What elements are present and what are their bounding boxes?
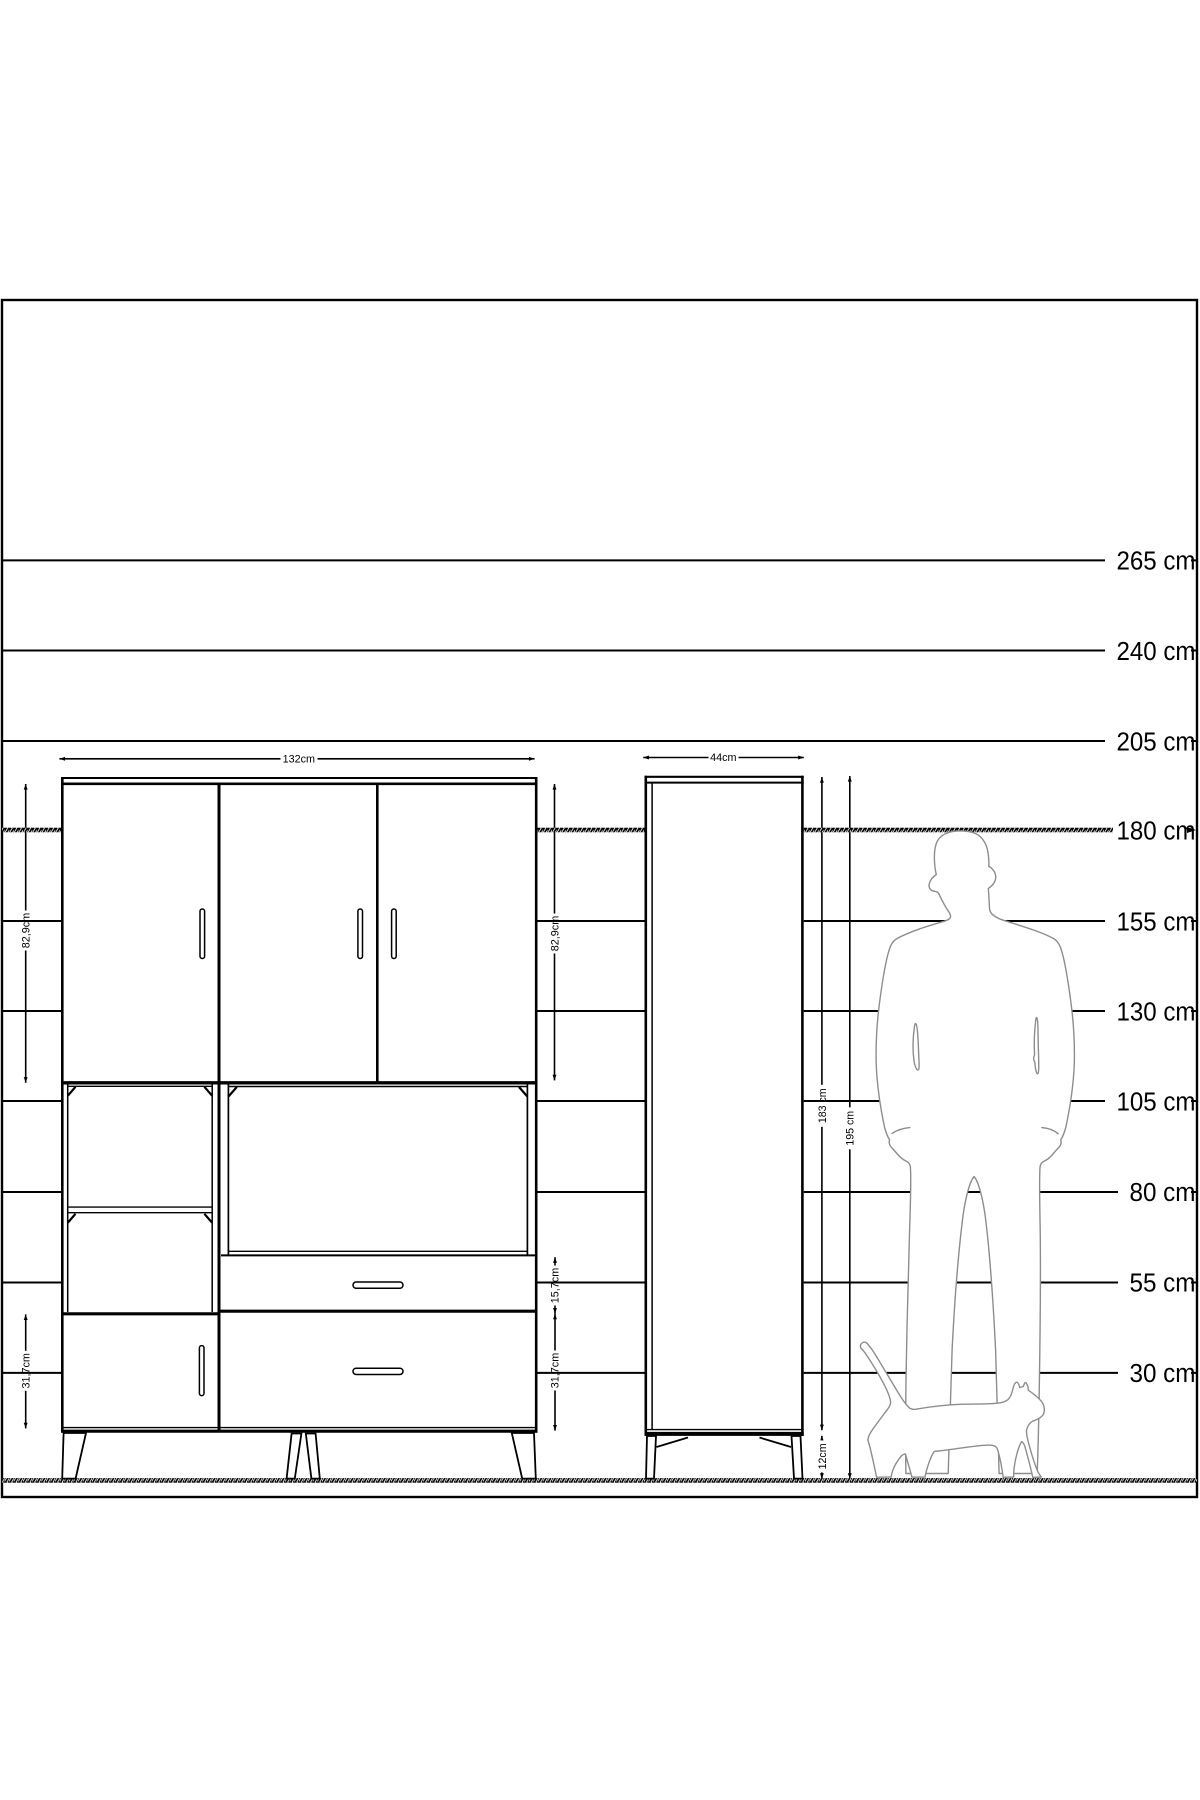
svg-text:195 cm: 195 cm — [845, 1111, 857, 1146]
svg-text:240 cm: 240 cm — [1117, 638, 1196, 666]
svg-text:183 cm: 183 cm — [817, 1088, 829, 1123]
svg-text:105 cm: 105 cm — [1117, 1088, 1196, 1116]
svg-text:130 cm: 130 cm — [1117, 998, 1196, 1026]
svg-text:132cm: 132cm — [283, 754, 315, 766]
svg-text:31,7cm: 31,7cm — [21, 1353, 33, 1388]
svg-text:55 cm: 55 cm — [1130, 1270, 1196, 1298]
svg-text:44cm: 44cm — [710, 752, 736, 764]
svg-text:265 cm: 265 cm — [1117, 548, 1196, 576]
svg-text:12cm: 12cm — [817, 1443, 829, 1469]
svg-text:31,7cm: 31,7cm — [550, 1353, 562, 1388]
svg-text:180 cm: 180 cm — [1117, 817, 1196, 845]
svg-text:15,7cm: 15,7cm — [550, 1268, 562, 1303]
svg-text:80 cm: 80 cm — [1130, 1179, 1196, 1207]
svg-text:155 cm: 155 cm — [1117, 908, 1196, 936]
svg-text:205 cm: 205 cm — [1117, 728, 1196, 756]
svg-text:82,9cm: 82,9cm — [21, 913, 33, 948]
svg-text:30 cm: 30 cm — [1130, 1360, 1196, 1388]
